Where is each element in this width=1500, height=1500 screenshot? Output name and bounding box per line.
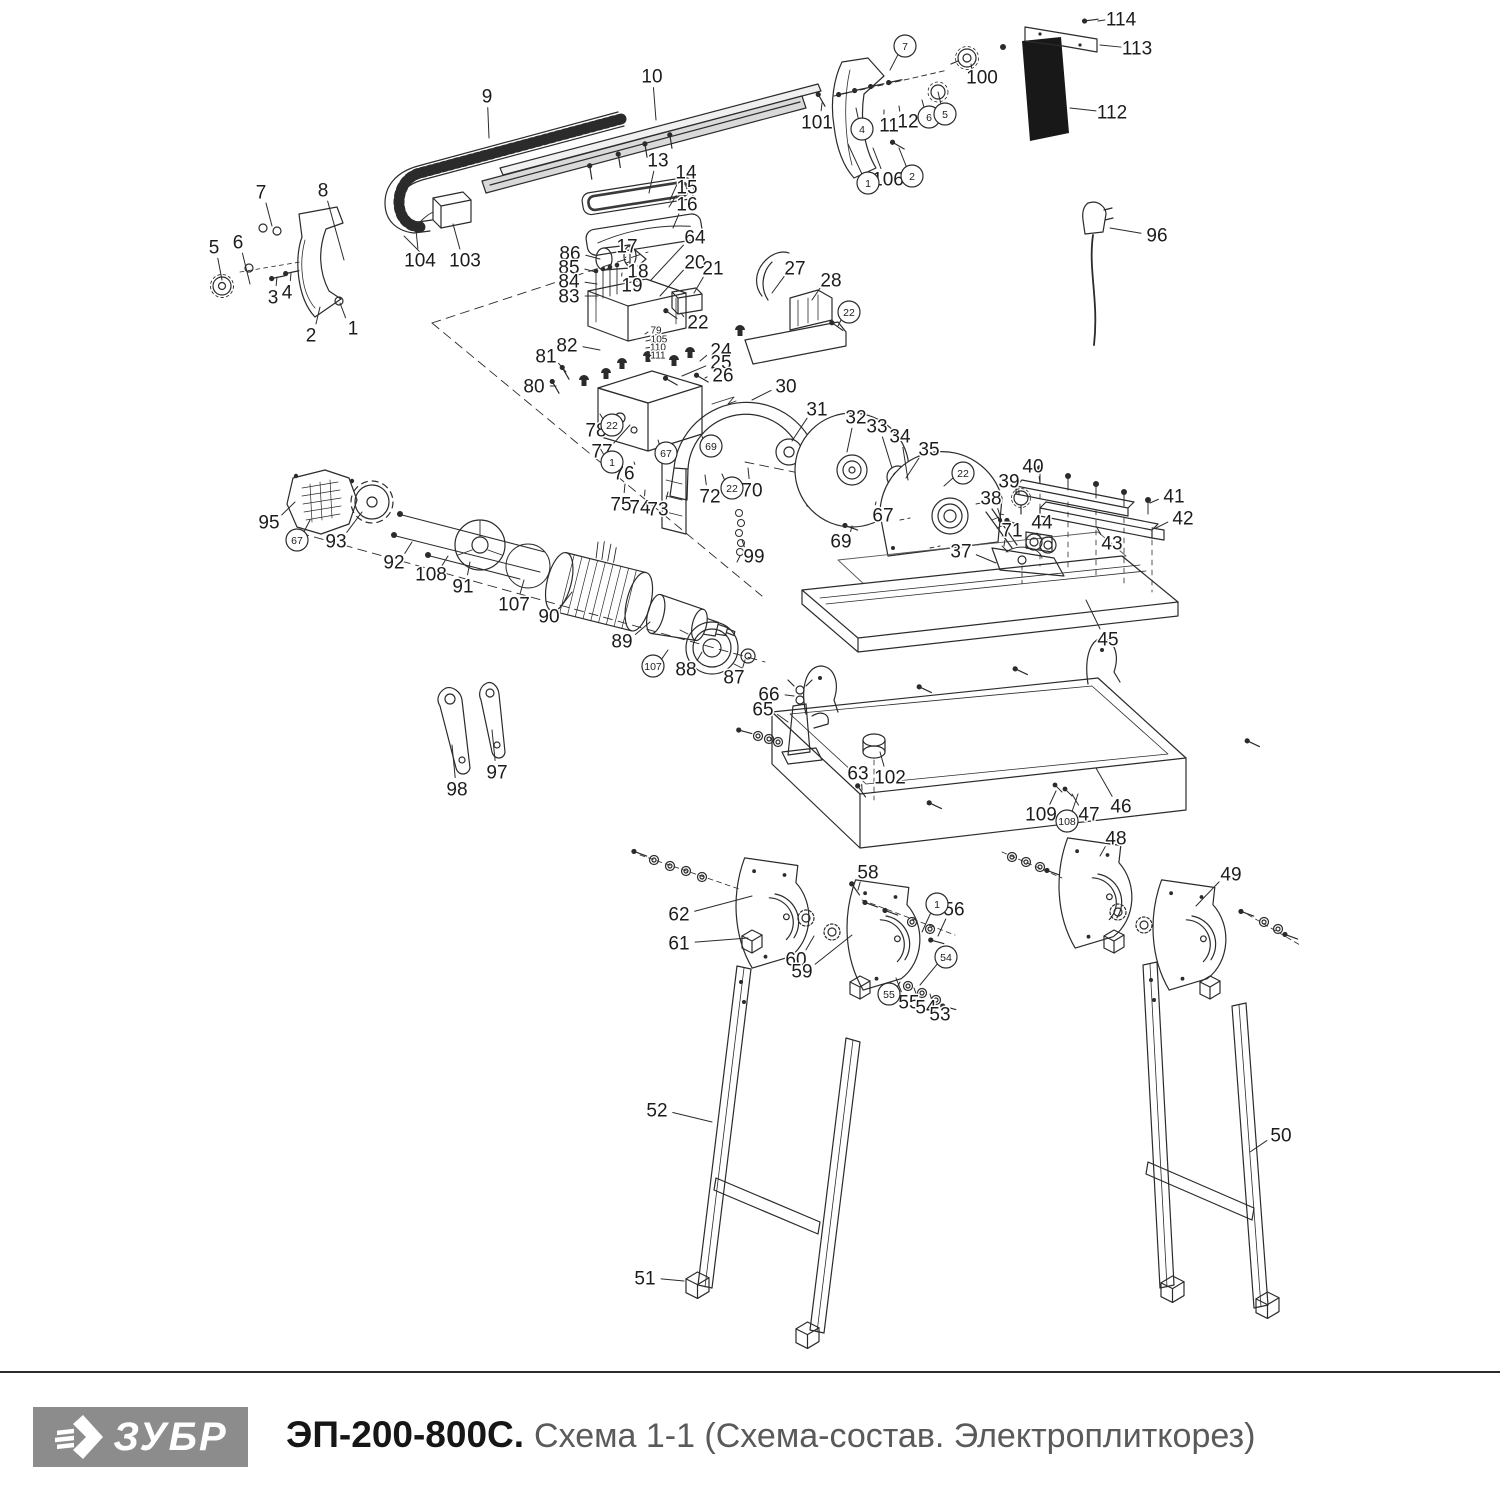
part-number: 107 [644,661,662,673]
callout-leader [624,484,625,493]
part-number: 64 [684,227,706,248]
part-number: 6 [233,232,244,253]
callout-leader [405,542,412,553]
part-number: 54 [940,952,952,964]
legs [698,962,1268,1333]
part-number: 53 [929,1004,950,1025]
part-number: 4 [282,282,293,303]
part-number: 65 [752,699,773,720]
part-number: 22 [957,468,969,480]
part-number: 95 [258,512,279,533]
part-number: 55 [883,989,895,1001]
leg-hinge-brackets [631,838,1300,1012]
callout-leader [1250,1141,1267,1152]
part-number: 22 [726,483,738,495]
part-number: 31 [806,399,827,420]
footer-title: ЭП-200-800С.Схема 1-1 (Схема-состав. Эле… [286,1414,1466,1456]
part-number: 108 [415,564,447,585]
part-number: 43 [1101,533,1122,554]
callout-leader [653,88,656,120]
part-number: 62 [668,904,689,925]
part-number: 102 [874,767,906,788]
callout-leader [1096,768,1112,796]
callout-leader [1100,45,1121,47]
pump-box [588,279,702,341]
callout-leader [705,377,707,378]
callout-leader [821,103,822,111]
callout-leader [922,912,931,932]
part-number: 9 [482,86,493,107]
part-number: 96 [1146,225,1167,246]
callout-leader [695,896,752,911]
part-number: 50 [1270,1125,1291,1146]
part-number: 7 [256,182,267,203]
adjuster-knob [951,47,979,70]
part-number: 63 [847,763,868,784]
callout-leader [586,255,600,259]
part-number: 58 [857,862,878,883]
part-number: 51 [634,1268,655,1289]
callout-leader [661,1279,684,1281]
part-number: 71 [1001,520,1022,541]
part-number: 10 [641,66,662,87]
part-number: 35 [918,439,939,460]
water-tray [772,638,1261,848]
callout-leader [890,53,899,70]
part-number: 73 [647,499,668,520]
part-number: 4 [859,124,865,136]
callout-leader [645,332,648,334]
warning-plate [1000,17,1098,141]
part-number: 93 [325,531,346,552]
part-number: 40 [1022,456,1043,477]
part-number: 28 [820,270,841,291]
callout-leader [976,555,996,563]
part-number: 82 [556,335,577,356]
callout-leader [848,144,863,175]
callout-leader [899,106,900,111]
callout-leader [290,273,291,281]
callout-leader [488,108,489,138]
brand-name: ЗУБР [113,1417,227,1457]
part-number: 75 [610,494,631,515]
part-number: 104 [404,250,436,271]
part-number: 26 [712,365,733,386]
callout-leader [772,277,784,293]
callout-leader [453,224,460,249]
power-plug [1083,202,1113,345]
motor-fan [351,481,393,523]
part-number: 2 [909,171,915,183]
part-number: 37 [950,541,971,562]
part-number: 46 [1110,796,1131,817]
part-number: 19 [621,275,642,296]
part-number: 97 [486,762,507,783]
part-number: 22 [606,420,618,432]
part-number: 48 [1105,828,1126,849]
part-number: 32 [845,407,866,428]
motor-fan-cover [287,470,357,534]
part-number: 34 [889,426,911,447]
part-number: 59 [791,961,812,982]
part-number: 100 [966,67,998,88]
part-number: 69 [705,441,717,453]
part-number: 67 [872,505,893,526]
part-number: 101 [801,112,833,133]
part-number: 39 [998,471,1019,492]
part-number: 22 [843,307,855,319]
part-number: 52 [646,1100,667,1121]
part-number: 81 [535,346,556,367]
part-number: 72 [699,486,720,507]
part-number: 47 [1078,804,1099,825]
part-number: 8 [318,180,329,201]
callout-leader [328,201,344,260]
part-number: 21 [702,258,723,279]
callout-leader [875,502,876,505]
part-number: 109 [1025,804,1057,825]
part-number: 30 [775,376,796,397]
o-ring [506,544,550,588]
part-number: 1 [865,178,871,190]
part-number: 3 [268,287,279,308]
part-number: 88 [675,659,696,680]
part-number: 114 [1106,9,1137,30]
part-number: 107 [498,594,530,615]
part-number: 99 [743,546,764,567]
footer-divider [0,1371,1500,1373]
exploded-view-drawing: 7856342191041031013141516642021228685848… [0,0,1500,1500]
part-number: 12 [897,111,918,132]
part-number: 17 [616,236,637,257]
part-number: 6 [926,112,932,124]
part-number: 90 [538,606,559,627]
part-number: 11 [879,115,899,136]
part-number: 44 [1031,512,1053,533]
callout-leader [276,277,277,286]
callout-leader [697,652,702,661]
part-number: 91 [452,576,473,597]
callout-leader [585,282,597,284]
part-number: 89 [611,631,632,652]
part-number: 1 [934,899,940,911]
bearing-shield [455,520,505,570]
part-number: 70 [741,480,762,501]
part-number: 83 [558,286,579,307]
callout-leader [938,919,946,936]
part-number: 61 [668,933,689,954]
callout-leader [661,650,668,660]
part-number: 67 [291,535,303,547]
part-number: 2 [306,325,317,346]
part-number: 5 [209,237,220,258]
part-number: 80 [523,376,544,397]
callout-leader [1050,791,1056,804]
part-number: 113 [1122,38,1152,59]
part-number: 112 [1097,102,1127,123]
callout-leader [242,253,250,284]
zubr-emblem-icon [53,1413,105,1461]
rotor [643,593,739,653]
schema-subtitle: Схема 1-1 (Схема-состав. Электроплиткоре… [534,1417,1255,1455]
callout-leader [899,148,907,168]
schematic-page: 7856342191041031013141516642021228685848… [0,0,1500,1500]
callout-leader [1098,20,1105,21]
part-number: 27 [784,258,805,279]
callout-leader [748,468,749,479]
part-number: 16 [676,194,697,215]
callout-leader [700,355,707,361]
brand-logo: ЗУБР [33,1407,248,1467]
part-number: 13 [647,150,668,171]
callout-leader [880,752,884,766]
part-number: 108 [1058,816,1076,828]
part-number: 33 [866,416,887,437]
callout-leader [920,963,938,985]
callout-leader [1150,499,1158,503]
part-number: 67 [660,448,672,460]
callout-leader [666,492,668,499]
callout-leader [785,695,794,696]
rubber-feet [686,1272,1279,1348]
callout-leader [266,203,272,226]
part-number: 92 [383,552,404,573]
callout-leader [705,475,706,485]
callout-leader [806,936,814,950]
part-number: 42 [1172,508,1193,529]
callout-leader [682,366,706,376]
callout-leader [1070,108,1096,111]
part-number: 7 [902,41,908,53]
part-number: 87 [723,667,744,688]
part-number: 45 [1097,629,1118,650]
callout-leader [282,502,295,515]
part-number: 41 [1163,486,1184,507]
model-name: ЭП-200-800С. [286,1414,524,1455]
callout-leader [583,347,600,350]
part-number: 69 [830,531,851,552]
part-number: 98 [446,779,467,800]
callout-leader [673,1112,712,1122]
part-number: 1 [609,457,615,469]
part-number: 111 [650,350,666,361]
part-number: 49 [1220,864,1241,885]
part-number: 5 [942,109,948,121]
callout-leader [752,390,771,400]
callout-leader [340,303,346,318]
part-number: 1 [348,318,359,339]
callout-leader [1110,228,1141,233]
part-number: 22 [687,312,708,333]
part-number: 103 [449,250,481,271]
